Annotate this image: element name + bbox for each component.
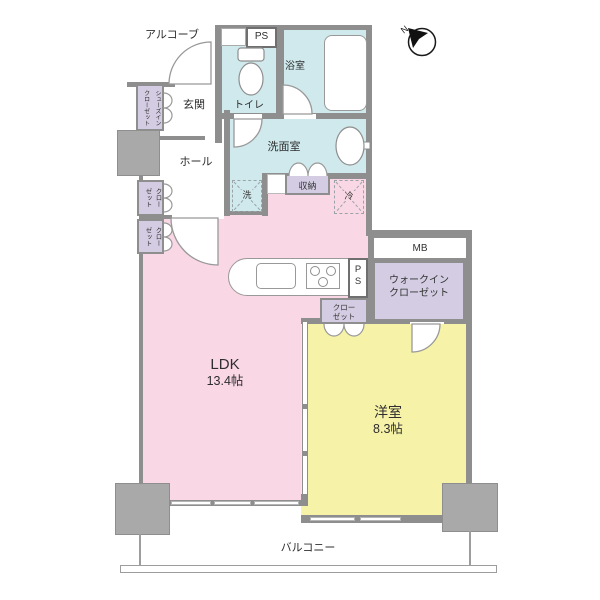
washbasin-icon	[336, 127, 370, 165]
bathroom-label: 浴室	[275, 57, 315, 72]
washer-label: 洗	[241, 190, 252, 200]
entrance-label: 玄関	[172, 96, 216, 112]
balcony-label: バルコニー	[248, 539, 368, 555]
western-room-label: 洋室 8.3帖	[328, 404, 448, 437]
walkin-door-swing	[412, 324, 440, 352]
closet-ldk-bifold-door	[164, 223, 172, 251]
doors-and-fixtures-layer: N	[0, 0, 600, 600]
toilet-fixture-icon	[238, 48, 264, 95]
floor-plan: シューズインクローゼット クローゼット クローゼット 収納 洗 冷 P S MB	[0, 0, 600, 600]
washroom-label: 洗面室	[254, 138, 314, 154]
toilet-label: トイレ	[228, 96, 270, 111]
alcove-label: アルコーブ	[138, 26, 206, 42]
closet-western-bifold-door	[324, 324, 364, 336]
western-size: 8.3帖	[328, 422, 448, 438]
fridge-label: 冷	[343, 191, 354, 201]
closet-hall-bifold-door	[164, 184, 172, 212]
hall-label: ホール	[166, 153, 226, 169]
shoes-closet-bifold-door	[164, 93, 172, 123]
ldk-size: 13.4帖	[165, 374, 285, 389]
entrance-door-swing	[169, 42, 211, 84]
ldk-label: LDK 13.4帖	[165, 356, 285, 389]
ldk-name: LDK	[165, 356, 285, 374]
western-name: 洋室	[328, 404, 448, 422]
compass-icon: N	[399, 24, 436, 56]
ldk-door-swing	[171, 218, 218, 265]
ps-top-label: PS	[246, 31, 277, 42]
storage-bifold-door	[289, 163, 327, 176]
bath-door-swing	[283, 85, 312, 114]
compass-north-label: N	[399, 24, 410, 36]
